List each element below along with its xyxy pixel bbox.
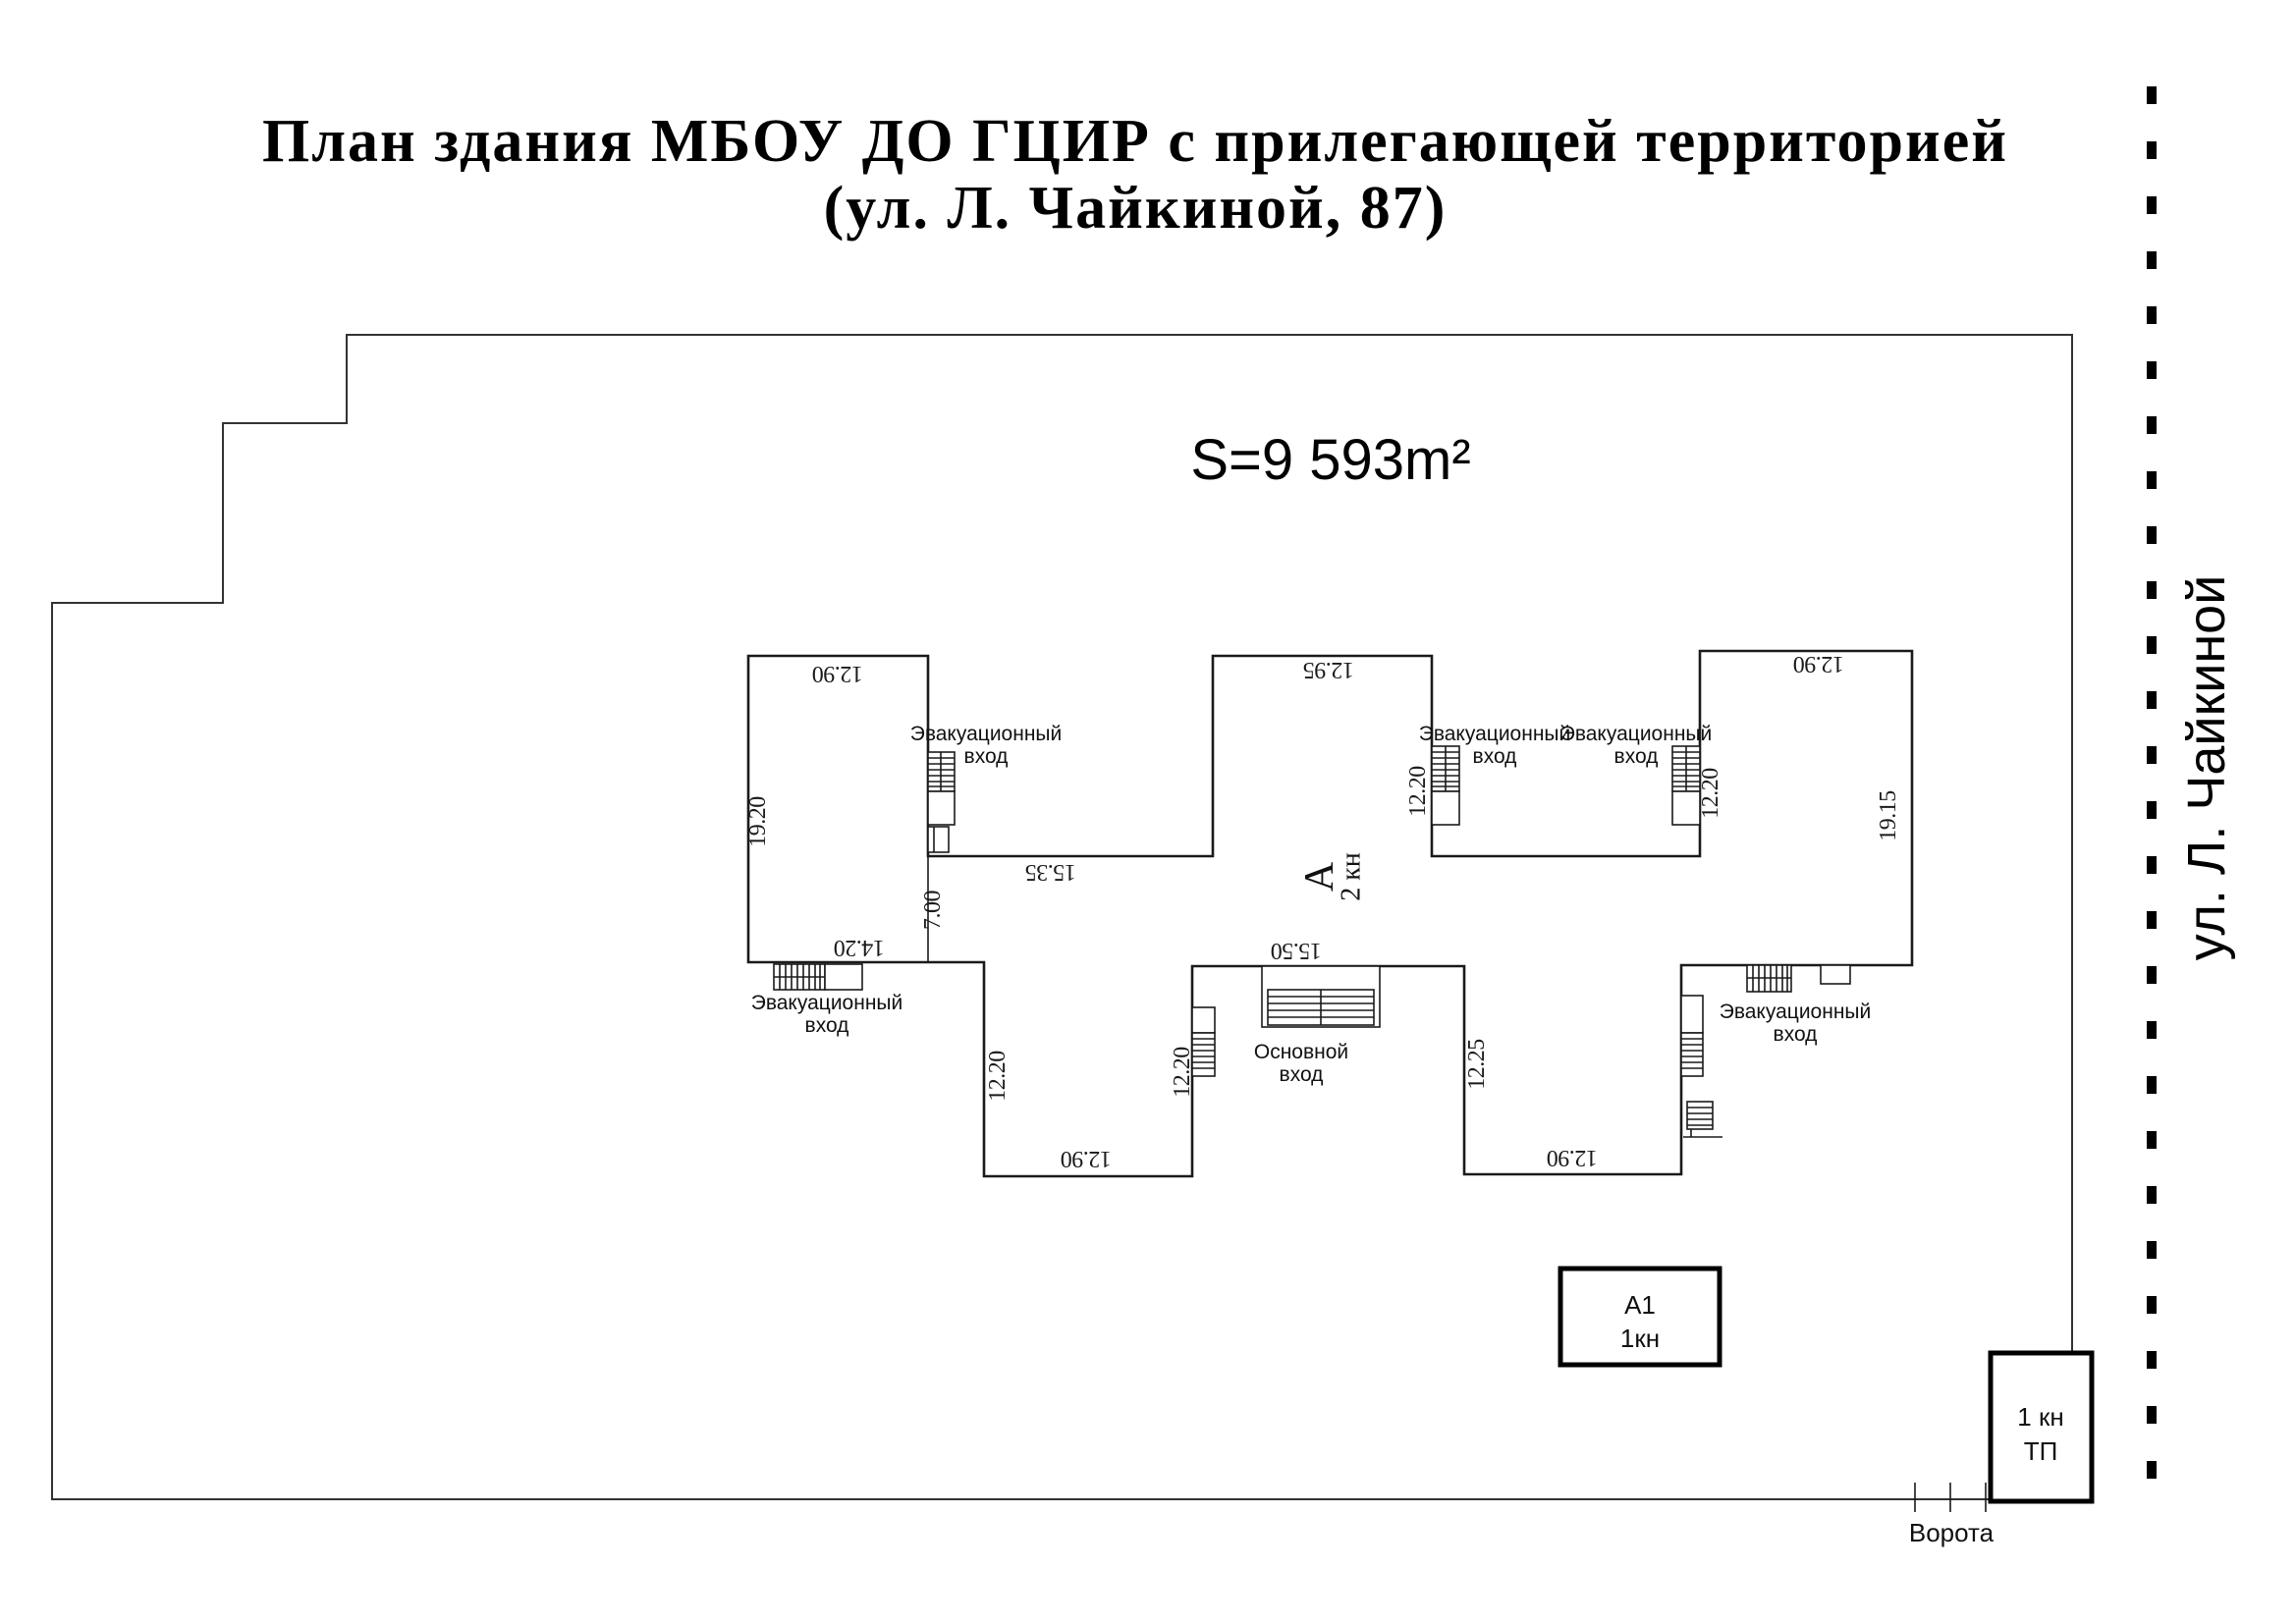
- gate-ticks: [1915, 1483, 1986, 1512]
- dim-spine-height: 7.00: [920, 891, 946, 931]
- evac-label-5-line1: Эвакуационный: [1720, 1001, 1872, 1023]
- site-plan-drawing: План здания МБОУ ДО ГЦИР с прилегающей т…: [0, 0, 2296, 1623]
- dim-recess1-width: 15.35: [1025, 859, 1076, 885]
- dim-right-block-top: 12.90: [1793, 651, 1844, 676]
- dim-right-stair-side: 12.20: [1698, 768, 1723, 819]
- dim-wing-right-west: 12.25: [1464, 1039, 1490, 1090]
- dim-wing-right-bottom: 12.90: [1547, 1145, 1598, 1170]
- stairs-evac-right-bottom: [1747, 965, 1791, 992]
- dim-mid-block-top: 12.95: [1303, 657, 1354, 682]
- evac-label-4-line2: вход: [805, 1014, 849, 1037]
- stairs-main-entrance: [1262, 966, 1380, 1027]
- evac-label-1-line2: вход: [964, 745, 1009, 768]
- evac-label-3-line2: вход: [1614, 745, 1659, 768]
- a1-box-line2: 1кн: [1620, 1324, 1660, 1353]
- dim-wing-left-west: 12.20: [985, 1051, 1011, 1102]
- evac-label-5: Эвакуационный вход: [1720, 1001, 1872, 1046]
- right-block-notch: [1821, 965, 1850, 984]
- territory-area-label: S=9 593m²: [1190, 428, 1470, 492]
- evac-label-3-line1: Эвакуационный: [1560, 723, 1713, 745]
- dim-wing-left-bottom: 12.90: [1061, 1146, 1112, 1171]
- building-mark-sub: 2 кн: [1337, 852, 1367, 901]
- main-entrance-label-line1: Основной: [1254, 1041, 1348, 1063]
- dim-wing-left-east: 12.20: [1170, 1047, 1195, 1098]
- stairs-evac-left-block: [928, 752, 955, 852]
- dim-main-entrance-width: 15.50: [1271, 938, 1322, 963]
- stairs-wing-right-upper: [1681, 996, 1703, 1076]
- main-entrance-label-line2: вход: [1280, 1063, 1324, 1086]
- stairs-evac-left-bottom: [774, 964, 862, 990]
- tp-box-line1: 1 кн: [2017, 1402, 2063, 1432]
- stairs-evac-mid-block: [1432, 746, 1459, 825]
- tp-box: 1 кн ТП: [1991, 1353, 2092, 1501]
- evac-label-4: Эвакуационный вход: [751, 992, 903, 1037]
- stairs-wing-right-lower: [1683, 1102, 1722, 1137]
- street-name-label: ул. Л. Чайкиной: [2177, 575, 2236, 961]
- evac-label-5-line2: вход: [1774, 1023, 1818, 1046]
- dim-mid-stair-side: 12.20: [1405, 766, 1431, 817]
- evac-label-4-line1: Эвакуационный: [751, 992, 903, 1014]
- a1-box: А1 1кн: [1560, 1269, 1720, 1365]
- plan-title-line1: План здания МБОУ ДО ГЦИР с прилегающей т…: [262, 108, 2008, 175]
- gate-label: Ворота: [1909, 1518, 1995, 1547]
- dim-left-block-top: 12.90: [812, 661, 863, 686]
- evac-label-2-line2: вход: [1473, 745, 1517, 768]
- site-plan-page: План здания МБОУ ДО ГЦИР с прилегающей т…: [0, 0, 2296, 1623]
- dim-right-block-height: 19.15: [1876, 790, 1901, 841]
- main-entrance-label: Основной вход: [1254, 1041, 1348, 1086]
- dim-left-block-height: 19.20: [745, 796, 771, 847]
- plan-title-line2: (ул. Л. Чайкиной, 87): [824, 175, 1448, 242]
- tp-box-line2: ТП: [2024, 1436, 2058, 1466]
- dim-left-block-bottom: 14.20: [834, 935, 885, 960]
- evac-label-2-line1: Эвакуационный: [1419, 723, 1571, 745]
- stairs-wing-left: [1192, 1007, 1215, 1076]
- evac-label-1-line1: Эвакуационный: [910, 723, 1063, 745]
- a1-box-line1: А1: [1624, 1290, 1656, 1320]
- stairs-evac-right-block: [1672, 746, 1700, 825]
